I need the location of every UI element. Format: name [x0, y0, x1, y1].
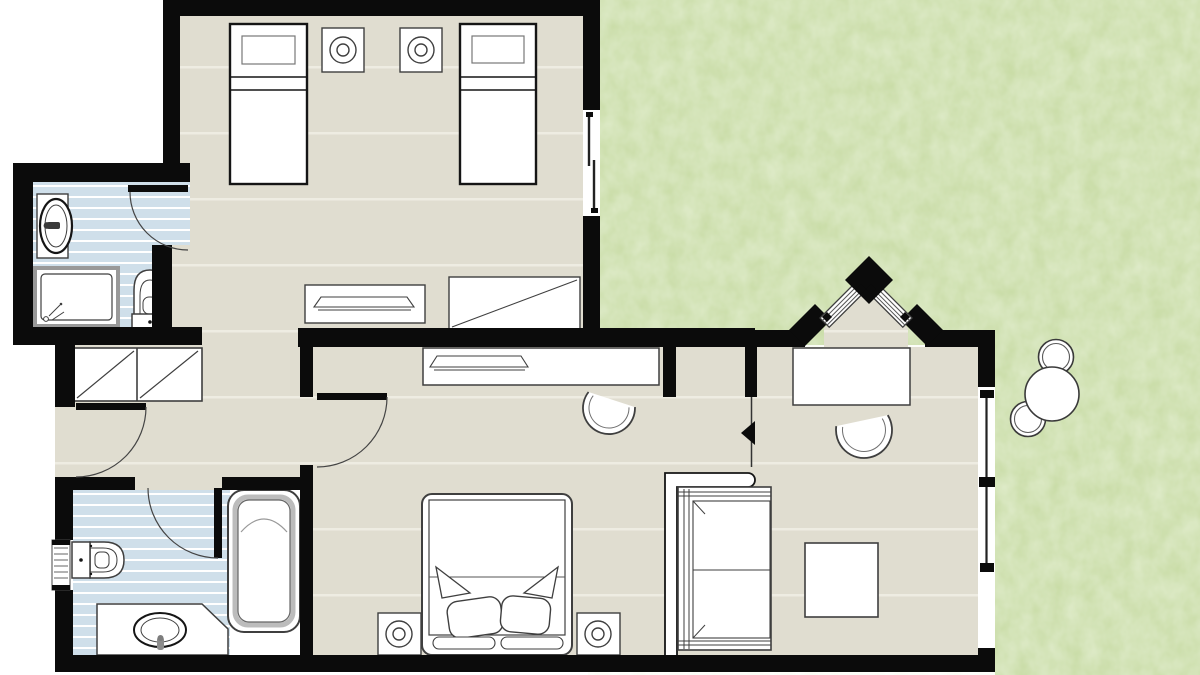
- wall-bathroom-upper-bottom: [13, 327, 202, 345]
- wall-opening-stub-left: [663, 347, 676, 397]
- wall-bathroom-lower-top-a: [55, 477, 135, 490]
- toilet-hinge-icon: [90, 545, 92, 547]
- toilet-hinge-icon: [90, 573, 92, 575]
- shrub-large: [1025, 367, 1079, 421]
- pillow-left: [446, 595, 505, 639]
- wall-top: [163, 0, 600, 16]
- ottoman-table: [805, 543, 878, 617]
- floor-plan: [0, 0, 1200, 675]
- doorway-threshold: [172, 245, 190, 327]
- wall-hallway-left: [55, 345, 75, 407]
- window-living: [978, 387, 995, 648]
- garden-upper: [600, 0, 1200, 345]
- window-bathroom-louver: [52, 540, 70, 590]
- single-bed-right: [460, 24, 536, 184]
- bathtub-rim: [228, 490, 300, 632]
- dresser-tray: [314, 297, 414, 307]
- wall-opening-stub-right: [745, 347, 757, 397]
- wall-central-band: [298, 328, 755, 347]
- console-desk: [423, 348, 659, 385]
- floor-plan-canvas: [0, 0, 1200, 675]
- hallway-closet: [74, 348, 202, 401]
- vanity: [97, 604, 228, 655]
- wall-bedroom-right-lower: [583, 214, 600, 330]
- nightstand-left: [322, 28, 364, 72]
- wall-bottom: [55, 655, 995, 672]
- bathtub: [228, 490, 300, 632]
- wall-bathroom-upper-left: [13, 163, 33, 345]
- wall-bathroom-lower-left-b: [55, 590, 73, 657]
- wall-bedroom-right-upper: [583, 0, 600, 112]
- console-tray: [430, 356, 528, 367]
- toilet-flush-button: [148, 320, 152, 324]
- nightstand-right: [400, 28, 442, 72]
- wall-living-right-upper: [978, 345, 995, 387]
- wall-living-right-lower: [978, 648, 995, 672]
- pillow: [242, 36, 295, 64]
- foot-cushion-right: [501, 637, 563, 649]
- sofa-frame: [678, 487, 771, 650]
- wardrobe: [449, 277, 580, 330]
- faucet-handle-icon: [44, 222, 51, 229]
- wall-bathroom-upper-right: [152, 245, 172, 329]
- door-leaf: [214, 488, 222, 558]
- desk: [793, 348, 910, 405]
- door-leaf: [317, 393, 387, 400]
- double-bed: [422, 494, 572, 655]
- door-leaf: [128, 185, 188, 192]
- lamp-icon-inner: [592, 628, 604, 640]
- sofa: [678, 487, 771, 650]
- pillow: [472, 36, 524, 63]
- closet-body: [74, 348, 202, 401]
- foot-cushion-left: [433, 637, 495, 649]
- lamp-icon-inner: [393, 628, 405, 640]
- window-twin-bedroom: [583, 110, 600, 216]
- wall-bathroom-lower-top-b: [222, 477, 300, 490]
- nightstand-master-left: [378, 613, 421, 655]
- wall-bedroom-left: [163, 0, 180, 170]
- dresser: [305, 285, 425, 323]
- nightstand-master-right: [577, 613, 620, 655]
- lamp-icon-inner: [415, 44, 427, 56]
- single-bed-left: [230, 24, 307, 184]
- pillow-right: [500, 595, 552, 635]
- wall-bathroom-upper-top: [13, 163, 190, 182]
- wall-divider-lower: [300, 465, 313, 657]
- toilet-flush-button: [79, 558, 83, 562]
- vanity-faucet-base: [158, 635, 164, 641]
- lamp-icon-inner: [337, 44, 349, 56]
- door-leaf: [76, 403, 146, 410]
- toilet-lower: [72, 542, 124, 578]
- wall-divider-upper: [300, 328, 313, 397]
